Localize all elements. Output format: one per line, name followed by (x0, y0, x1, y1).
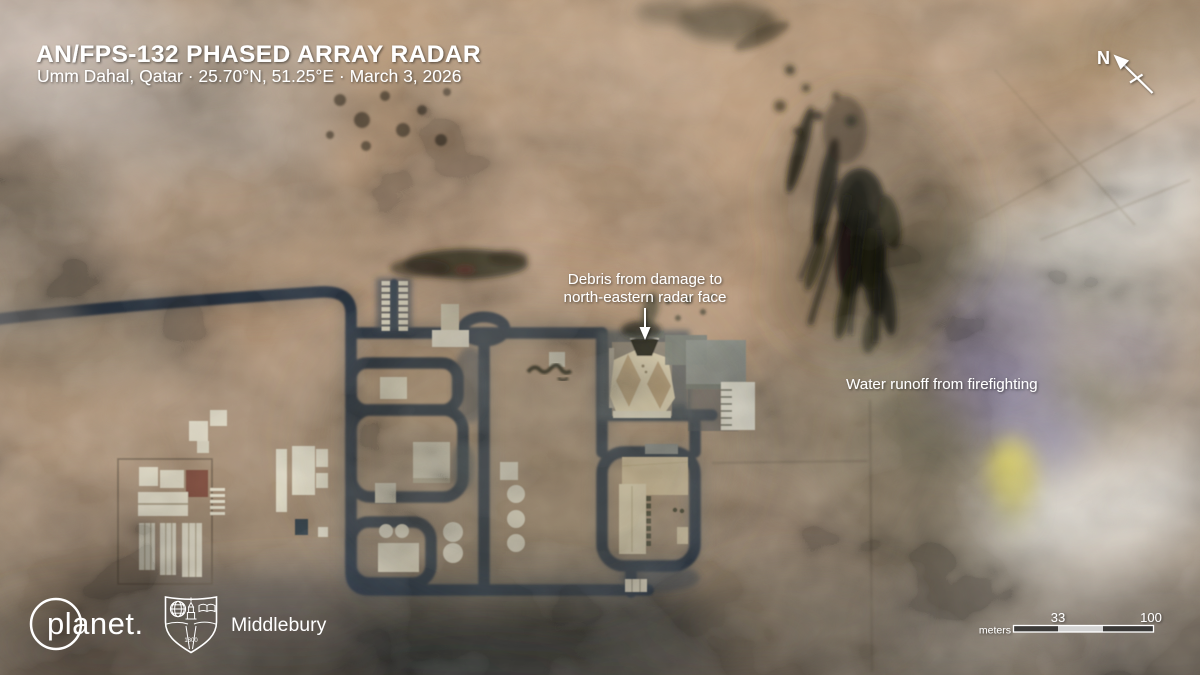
svg-text:100: 100 (1140, 610, 1162, 625)
svg-text:N: N (1097, 48, 1110, 68)
svg-text:Water runoff from firefighting: Water runoff from firefighting (846, 376, 1038, 393)
svg-text:AN/FPS-132 PHASED ARRAY RADAR: AN/FPS-132 PHASED ARRAY RADAR (36, 41, 481, 68)
svg-text:meters: meters (979, 625, 1011, 637)
svg-text:1800: 1800 (184, 638, 198, 644)
svg-text:Debris from damage to: Debris from damage to (568, 271, 722, 288)
svg-text:Middlebury: Middlebury (231, 614, 327, 636)
svg-text:north-eastern radar face: north-eastern radar face (564, 289, 727, 306)
svg-text:planet.: planet. (47, 606, 144, 641)
svg-text:Umm Dahal, Qatar · 25.70°N, 51: Umm Dahal, Qatar · 25.70°N, 51.25°E · Ma… (37, 66, 461, 86)
svg-text:33: 33 (1051, 610, 1065, 625)
